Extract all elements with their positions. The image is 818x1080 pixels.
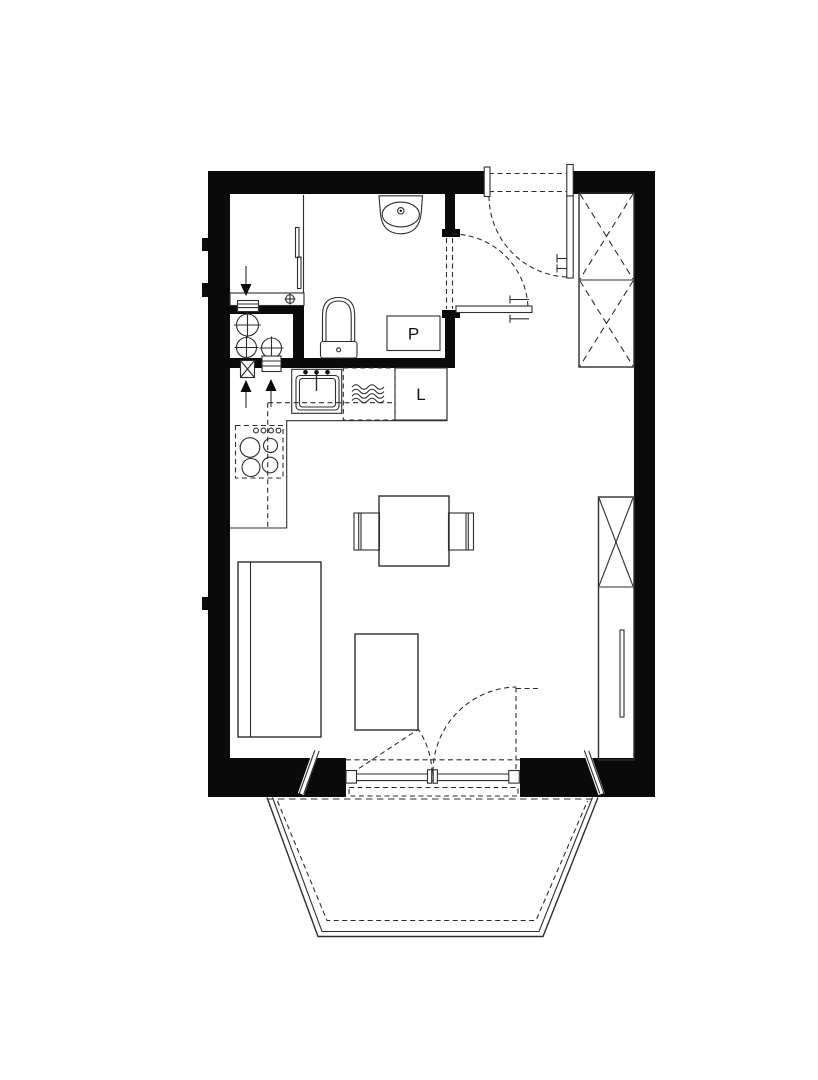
washing-machine-icon: P [387, 316, 440, 351]
cabinet-handle [620, 630, 624, 717]
fridge-label: L [416, 385, 425, 404]
wall-bath-east-upper [445, 194, 455, 229]
door-swing-icon [489, 196, 570, 277]
fridge-icon: L [395, 368, 447, 420]
plumbing-riser-icon [234, 312, 261, 339]
kitchen-sink-icon [292, 369, 342, 413]
door-handle-icon [557, 254, 567, 273]
toilet-icon [321, 298, 358, 359]
dining-table-icon [379, 496, 449, 566]
wall-left [208, 171, 230, 797]
door-jamb [442, 229, 460, 237]
door-sill [346, 770, 519, 783]
kitchen: L [230, 368, 447, 528]
balcony-inner-line [278, 801, 588, 921]
door-leaf [567, 196, 573, 278]
door-leaf [352, 730, 418, 774]
tall-cabinet [599, 497, 635, 760]
wall-top-left [208, 171, 484, 194]
dishwasher-icon [343, 368, 395, 420]
bathroom: P [230, 195, 440, 358]
door-jamb [567, 165, 573, 197]
ventilation-arrow-icon [241, 380, 252, 408]
duct-icon [241, 361, 255, 378]
shower-glass-icon [298, 257, 302, 289]
chair-icon [449, 513, 474, 550]
bathroom-door [447, 234, 533, 323]
wall-shaft-east [293, 313, 304, 358]
threshold [349, 788, 518, 797]
plumbing-riser-icon [235, 336, 259, 359]
shaft-symbols [234, 266, 284, 408]
shower-glass-icon [296, 228, 300, 258]
vent-grate-icon [262, 356, 281, 372]
ventilation-arrow-icon [241, 266, 252, 296]
sofa-icon [238, 562, 321, 737]
stove-icon [236, 426, 284, 479]
door-leaf [456, 306, 532, 313]
bathroom-sink-icon [379, 196, 423, 234]
wall-nub [202, 238, 208, 251]
balcony-railing-icon [267, 798, 598, 937]
chair-icon [354, 513, 380, 550]
wardrobe-x-icon [579, 193, 634, 367]
entry-door [484, 165, 573, 279]
wall-bath-east-lower [445, 318, 455, 358]
wall-right [634, 171, 655, 797]
door-swing-icon [433, 687, 516, 772]
ottoman-icon [355, 634, 418, 730]
floor-plan-svg: P [0, 0, 818, 1080]
wall-nub [202, 597, 208, 610]
vent-grate-icon [238, 301, 259, 312]
wall-bottom-left [208, 758, 346, 797]
washing-machine-label: P [408, 325, 419, 344]
door-swing-icon [452, 234, 528, 310]
walls [202, 171, 655, 797]
door-jamb [484, 167, 490, 197]
floor-plan-page: P [0, 0, 818, 1080]
door-swing-icon [418, 729, 432, 773]
wall-nub [202, 283, 208, 297]
balcony-door [346, 687, 538, 796]
